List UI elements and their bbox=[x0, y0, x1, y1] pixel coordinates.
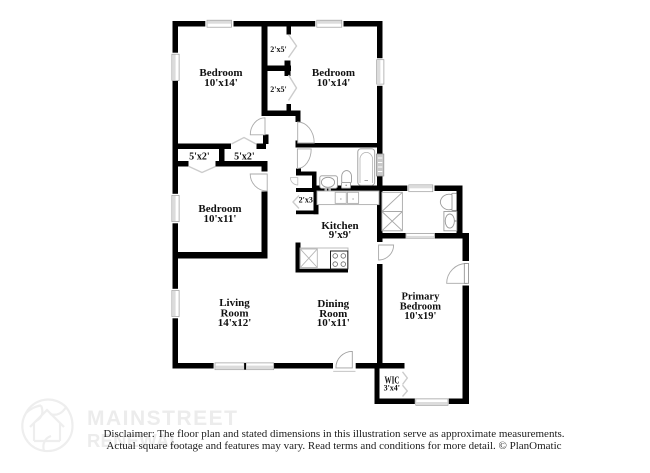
svg-text:2'x5': 2'x5' bbox=[270, 85, 286, 94]
svg-text:10'x11': 10'x11' bbox=[203, 213, 236, 225]
svg-text:10'x19': 10'x19' bbox=[404, 311, 436, 322]
svg-text:Disclaimer: The floor plan and: Disclaimer: The floor plan and stated di… bbox=[103, 428, 564, 440]
svg-text:5'x2': 5'x2' bbox=[189, 151, 210, 162]
svg-text:10'x14': 10'x14' bbox=[317, 77, 351, 89]
svg-text:14'x12': 14'x12' bbox=[218, 317, 252, 329]
svg-text:Actual square footage and feat: Actual square footage and features may v… bbox=[106, 440, 561, 452]
svg-text:2'x5': 2'x5' bbox=[270, 45, 286, 54]
svg-text:MAINSTREET: MAINSTREET bbox=[87, 407, 239, 430]
svg-text:2'x3': 2'x3' bbox=[299, 196, 315, 205]
svg-text:5'x2': 5'x2' bbox=[234, 151, 255, 162]
svg-text:10'x11': 10'x11' bbox=[317, 317, 350, 329]
svg-text:3'x4': 3'x4' bbox=[384, 384, 400, 393]
svg-text:9'x9': 9'x9' bbox=[329, 229, 352, 241]
svg-text:10'x14': 10'x14' bbox=[204, 77, 238, 89]
